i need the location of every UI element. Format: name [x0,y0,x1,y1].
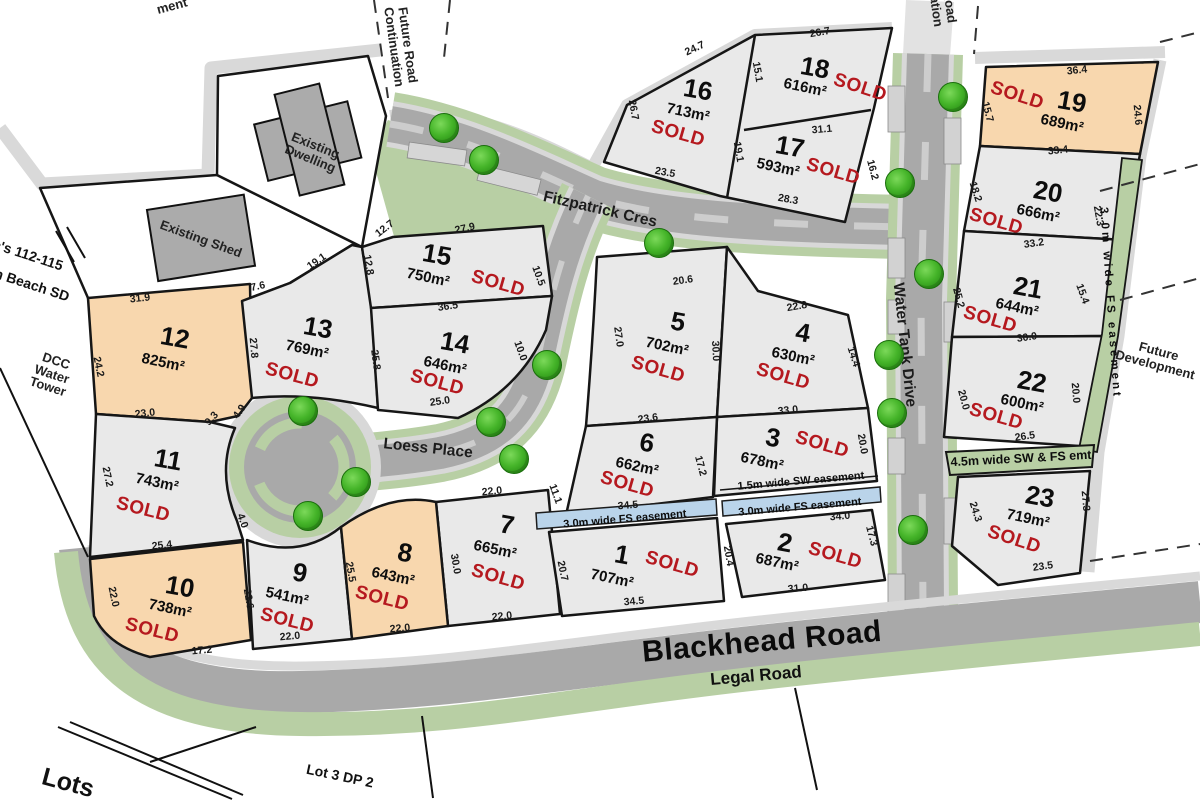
lot-19-sold-badge: SOLD [988,78,1046,114]
lot-8-number: 8 [396,538,415,567]
lot-7-number: 7 [498,510,517,539]
lot-18-sold-badge: SOLD [831,70,889,106]
dimension-label: 11.1 [546,483,563,505]
boundary-ref-line1: c's 112-115 [0,237,65,273]
tree-icon [293,501,323,531]
lot-15-number: 15 [420,239,453,271]
dimension-label: 36.4 [1066,64,1087,77]
dimension-label: 22.0 [105,586,120,608]
future-road-continuation-right: Future Road Continuation [921,0,960,30]
lot-1-sold-badge: SOLD [643,548,701,582]
tree-icon [288,396,318,426]
tree-icon [874,340,904,370]
dimension-label: 22.0 [481,485,502,498]
dimension-label: 22.0 [491,610,512,623]
dimension-label: 17.2 [191,645,212,658]
dimension-label: 24.6 [1131,104,1144,125]
easement-partial-label: ment [155,0,189,17]
tree-icon [429,113,459,143]
dimension-label: 24.3 [967,501,984,524]
tree-icon [469,145,499,175]
easement-label: 3.0m wide FS easement [563,509,687,531]
dimension-label: 23.5 [654,166,676,180]
dimension-label: 10.0 [511,340,528,363]
lot-11-number: 11 [152,444,184,476]
road-label-blackhead-road: Blackhead Road [641,616,883,668]
dimension-label: 27.3 [1079,490,1092,511]
dimension-label: 36.5 [437,300,459,314]
dimension-label: 15.7 [979,101,995,124]
dimension-label: 26.5 [1014,430,1036,444]
dimension-label: 15.4 [1073,283,1090,306]
lot-23-number: 23 [1023,481,1056,513]
lot-3-dp-label: Lot 3 DP 2 [305,762,375,791]
lot-6-number: 6 [638,428,657,457]
lot-2-area: 687m² [754,551,800,575]
dimension-label: 16.2 [864,159,880,182]
lot-1-number: 1 [613,540,632,569]
dimension-label: 9.3 [203,410,221,428]
dimension-label: 33.4 [1047,144,1068,157]
lot-13-number: 13 [301,312,334,344]
dimension-label: 26.7 [809,26,831,40]
future-development-label: Future Development [1112,334,1200,383]
dimension-label: 23.6 [637,412,659,426]
lot-14-number: 14 [438,327,471,359]
easement-label: 1.5m wide SW easement [737,471,865,494]
tree-icon [341,467,371,497]
tree-icon [644,228,674,258]
dimension-label: 34.5 [617,500,638,513]
dimension-label: 20.6 [672,274,694,288]
tree-icon [898,515,928,545]
dimension-label: 34.5 [623,596,644,609]
dimension-label: 27.0 [611,326,625,348]
dimension-label: 20.0 [955,389,971,412]
lot-12-area: 825m² [140,351,186,375]
dimension-label: 25.2 [950,287,966,310]
dimension-label: 22.6 [241,588,255,610]
dimension-label: 27.8 [247,337,260,358]
lot-4-number: 4 [794,318,813,347]
dimension-label: 17.2 [692,455,708,478]
lot-2-sold-badge: SOLD [806,539,864,573]
dimension-label: 26.7 [626,99,640,121]
easement-label: 4.5m wide SW & FS emt [950,449,1092,469]
lot-7-area: 665m² [472,538,518,562]
easement-label: 3.0m wide FS easement [1097,207,1122,399]
dimension-label: 23.0 [134,407,155,420]
dimension-label: 30.0 [448,553,462,575]
future-road-continuation-top: Future Road Continuation [382,2,421,91]
dimension-label: 23.5 [1032,560,1054,574]
dimension-label: 19.1 [305,252,328,273]
road-label-fitzpatrick-cres: Fitzpatrick Cres [542,189,659,231]
dimension-label: 17.3 [863,525,879,548]
dimension-label: 4.9 [231,403,248,421]
dimension-label: 18.2 [967,181,984,204]
lot-15-sold-badge: SOLD [469,267,527,301]
dimension-label: 20.7 [554,560,569,582]
lot-13-sold-badge: SOLD [263,359,321,392]
dimension-label: 25.4 [151,539,172,552]
lot-20-number: 20 [1031,176,1064,208]
dimension-label: 22.0 [279,631,300,644]
dimension-label: 4.0 [234,512,249,529]
lots-partial-label: Lots [39,763,97,800]
existing-shed-label: Existing Shed [158,218,243,260]
dimension-label: 31.1 [811,124,832,137]
labels-layer: 1707m²SOLD2687m²SOLD3678m²SOLD4630m²SOLD… [0,0,1200,800]
lot-5-sold-badge: SOLD [629,353,687,387]
dimension-label: 20.0 [855,433,869,455]
dimension-label: 19.1 [731,141,745,163]
tree-icon [877,398,907,428]
lot-22-number: 22 [1015,366,1048,398]
dimension-label: 10.5 [529,265,546,288]
dimension-label: 34.0 [829,511,850,524]
dimension-label: 12.8 [361,254,375,276]
tree-icon [938,82,968,112]
dimension-label: 25.8 [368,349,382,371]
dimension-label: 25.5 [343,561,357,583]
lot-5-area: 702m² [644,335,690,359]
lot-5-number: 5 [669,307,688,336]
lot-17-sold-badge: SOLD [804,155,862,189]
existing-dwelling-label: Existing Dwelling [265,122,361,182]
dimension-label: 22.0 [389,623,410,636]
lot-7-sold-badge: SOLD [469,561,527,595]
lot-3-number: 3 [764,423,783,452]
lot-10-number: 10 [163,571,196,603]
tree-icon [914,259,944,289]
lot-11-sold-badge: SOLD [114,494,172,527]
subdivision-plan: 1707m²SOLD2687m²SOLD3678m²SOLD4630m²SOLD… [0,0,1200,800]
dimension-label: 27.9 [454,221,476,236]
dimension-label: 24.7 [683,40,706,59]
dimension-label: 20.4 [721,545,735,567]
dimension-label: 25.0 [429,395,451,409]
dimension-label: 28.3 [777,193,799,207]
lot-1-area: 707m² [589,567,635,591]
dimension-label: 27.2 [99,466,114,488]
lot-19-number: 19 [1055,86,1088,118]
dcc-water-tower-label: DCC Water Tower [20,346,84,402]
tree-icon [885,168,915,198]
road-label-legal-road: Legal Road [710,663,803,689]
lot-3-area: 678m² [739,450,785,474]
dimension-label: 12.7 [374,218,397,239]
tree-icon [532,350,562,380]
dimension-label: 14.4 [845,346,862,369]
dimension-label: 33.2 [1023,237,1045,251]
tree-icon [499,444,529,474]
tree-icon [476,407,506,437]
lot-9-number: 9 [291,558,310,587]
lot-8-sold-badge: SOLD [353,583,411,616]
dimension-label: 31.0 [787,583,808,596]
dimension-label: 30.0 [1016,331,1038,345]
lot-10-sold-badge: SOLD [123,615,181,648]
dimension-label: 24.2 [90,356,105,378]
dimension-label: 20.0 [1069,382,1082,403]
dimension-label: 7.6 [250,280,267,294]
dimension-label: 31.9 [129,292,150,305]
lot-3-sold-badge: SOLD [793,428,851,462]
dimension-label: 30.0 [709,341,721,362]
lot-16-number: 16 [681,74,714,106]
dimension-label: 22.8 [786,300,808,314]
dimension-label: 33.0 [777,404,798,417]
road-label-loess-place: Loess Place [383,436,474,462]
lot-12-number: 12 [158,322,191,354]
dimension-label: 15.1 [750,61,764,83]
